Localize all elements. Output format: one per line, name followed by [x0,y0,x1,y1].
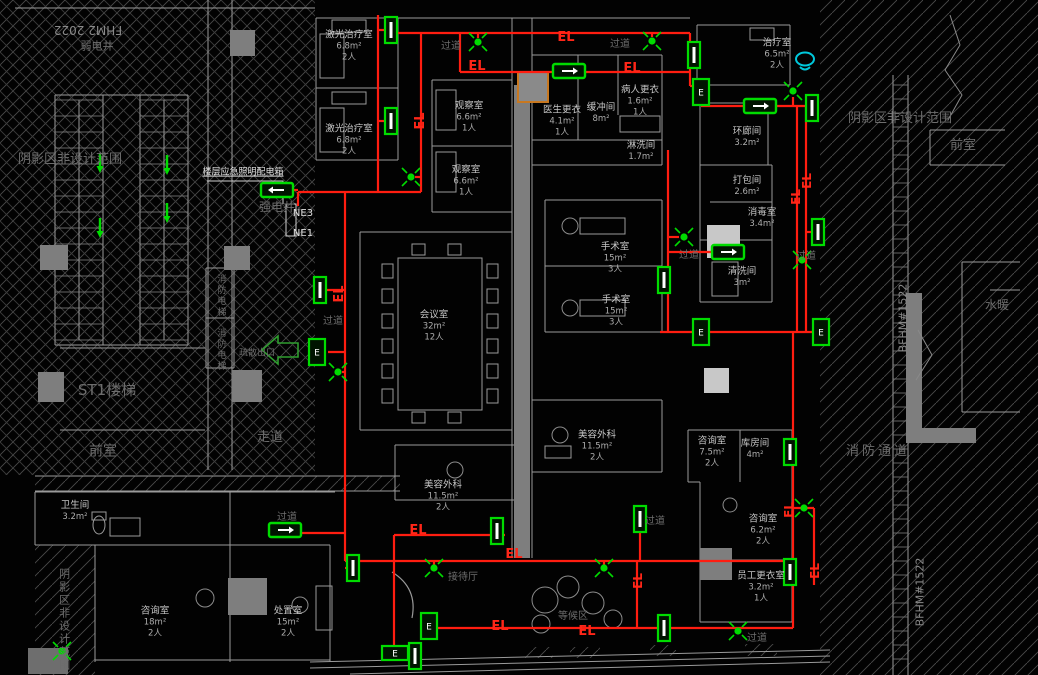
revision-cloud-marker [796,53,814,66]
hoistway-block [518,72,548,102]
emergency-box-symbol: E [421,613,437,639]
svg-text:E: E [818,329,824,339]
wall-emergency-light-symbol [314,277,326,303]
furniture [196,589,214,607]
wall-emergency-light-symbol [385,17,397,43]
furniture [545,446,571,458]
wall-emergency-light-symbol [658,267,670,293]
furniture [110,518,140,536]
wall-emergency-light-symbol [634,506,646,532]
furniture [580,300,625,316]
column-block [224,246,250,270]
wall-emergency-light-symbol [347,555,359,581]
furniture [332,92,366,104]
wall-emergency-light-symbol [784,439,796,465]
emergency-box-symbol: E [382,646,408,660]
exit-sign-symbol [744,99,776,113]
exit-sign-symbol [553,64,585,78]
furniture [532,615,550,633]
furniture [562,300,578,316]
ceiling-light-symbol [793,251,811,269]
emergency-box-symbol: E [693,79,709,105]
furniture [320,108,344,152]
svg-text:E: E [698,329,704,339]
wall-emergency-light-symbol [784,559,796,585]
emergency-box-symbol: E [309,339,325,365]
column-block [40,245,68,270]
emergency-box-symbol: E [693,319,709,345]
column-block [38,372,64,402]
column-block [228,578,267,615]
furniture [292,597,308,613]
furniture [532,587,558,613]
column-block [700,548,732,580]
column-block [514,85,530,558]
hatch-region [820,0,1038,675]
furniture [604,610,622,628]
svg-text:E: E [314,349,320,359]
floorplan-canvas: EEEEEE [0,0,1038,675]
exit-sign-symbol [261,183,293,197]
furniture [552,427,568,443]
furniture [320,34,344,78]
svg-text:E: E [392,650,398,660]
wall-emergency-light-symbol [812,219,824,245]
column-block [906,428,976,443]
furniture [447,462,463,478]
wall-emergency-light-symbol [658,615,670,641]
column-block [704,368,729,393]
svg-text:E: E [698,89,704,99]
exit-sign-symbol [712,245,744,259]
column-block [230,30,255,56]
emergency-box-symbol: E [813,319,829,345]
column-block [906,293,922,443]
furniture [750,28,774,40]
furniture [557,576,579,598]
wall-emergency-light-symbol [491,518,503,544]
furniture [436,90,456,130]
cad-floorplan-view[interactable]: EEEEEE 阴影区非设计范围阴影区非设计范围阴影区非设计范围前室前室走道ST1… [0,0,1038,675]
wall-emergency-light-symbol [688,42,700,68]
wall-emergency-light-symbol [385,108,397,134]
furniture [562,218,578,234]
ceiling-light-symbol [729,622,747,640]
furniture [580,218,625,234]
furniture [712,262,738,296]
furniture [332,20,366,32]
wall-emergency-light-symbol [409,643,421,669]
exit-sign-symbol [269,523,301,537]
hatch-region [745,644,777,656]
wall-emergency-light-symbol [806,95,818,121]
svg-text:E: E [426,623,432,633]
column-block [232,370,262,402]
furniture [620,116,660,132]
hatch-region [0,0,315,475]
furniture [723,498,737,512]
furniture [436,152,456,192]
furniture [582,592,604,614]
furniture [398,258,482,410]
